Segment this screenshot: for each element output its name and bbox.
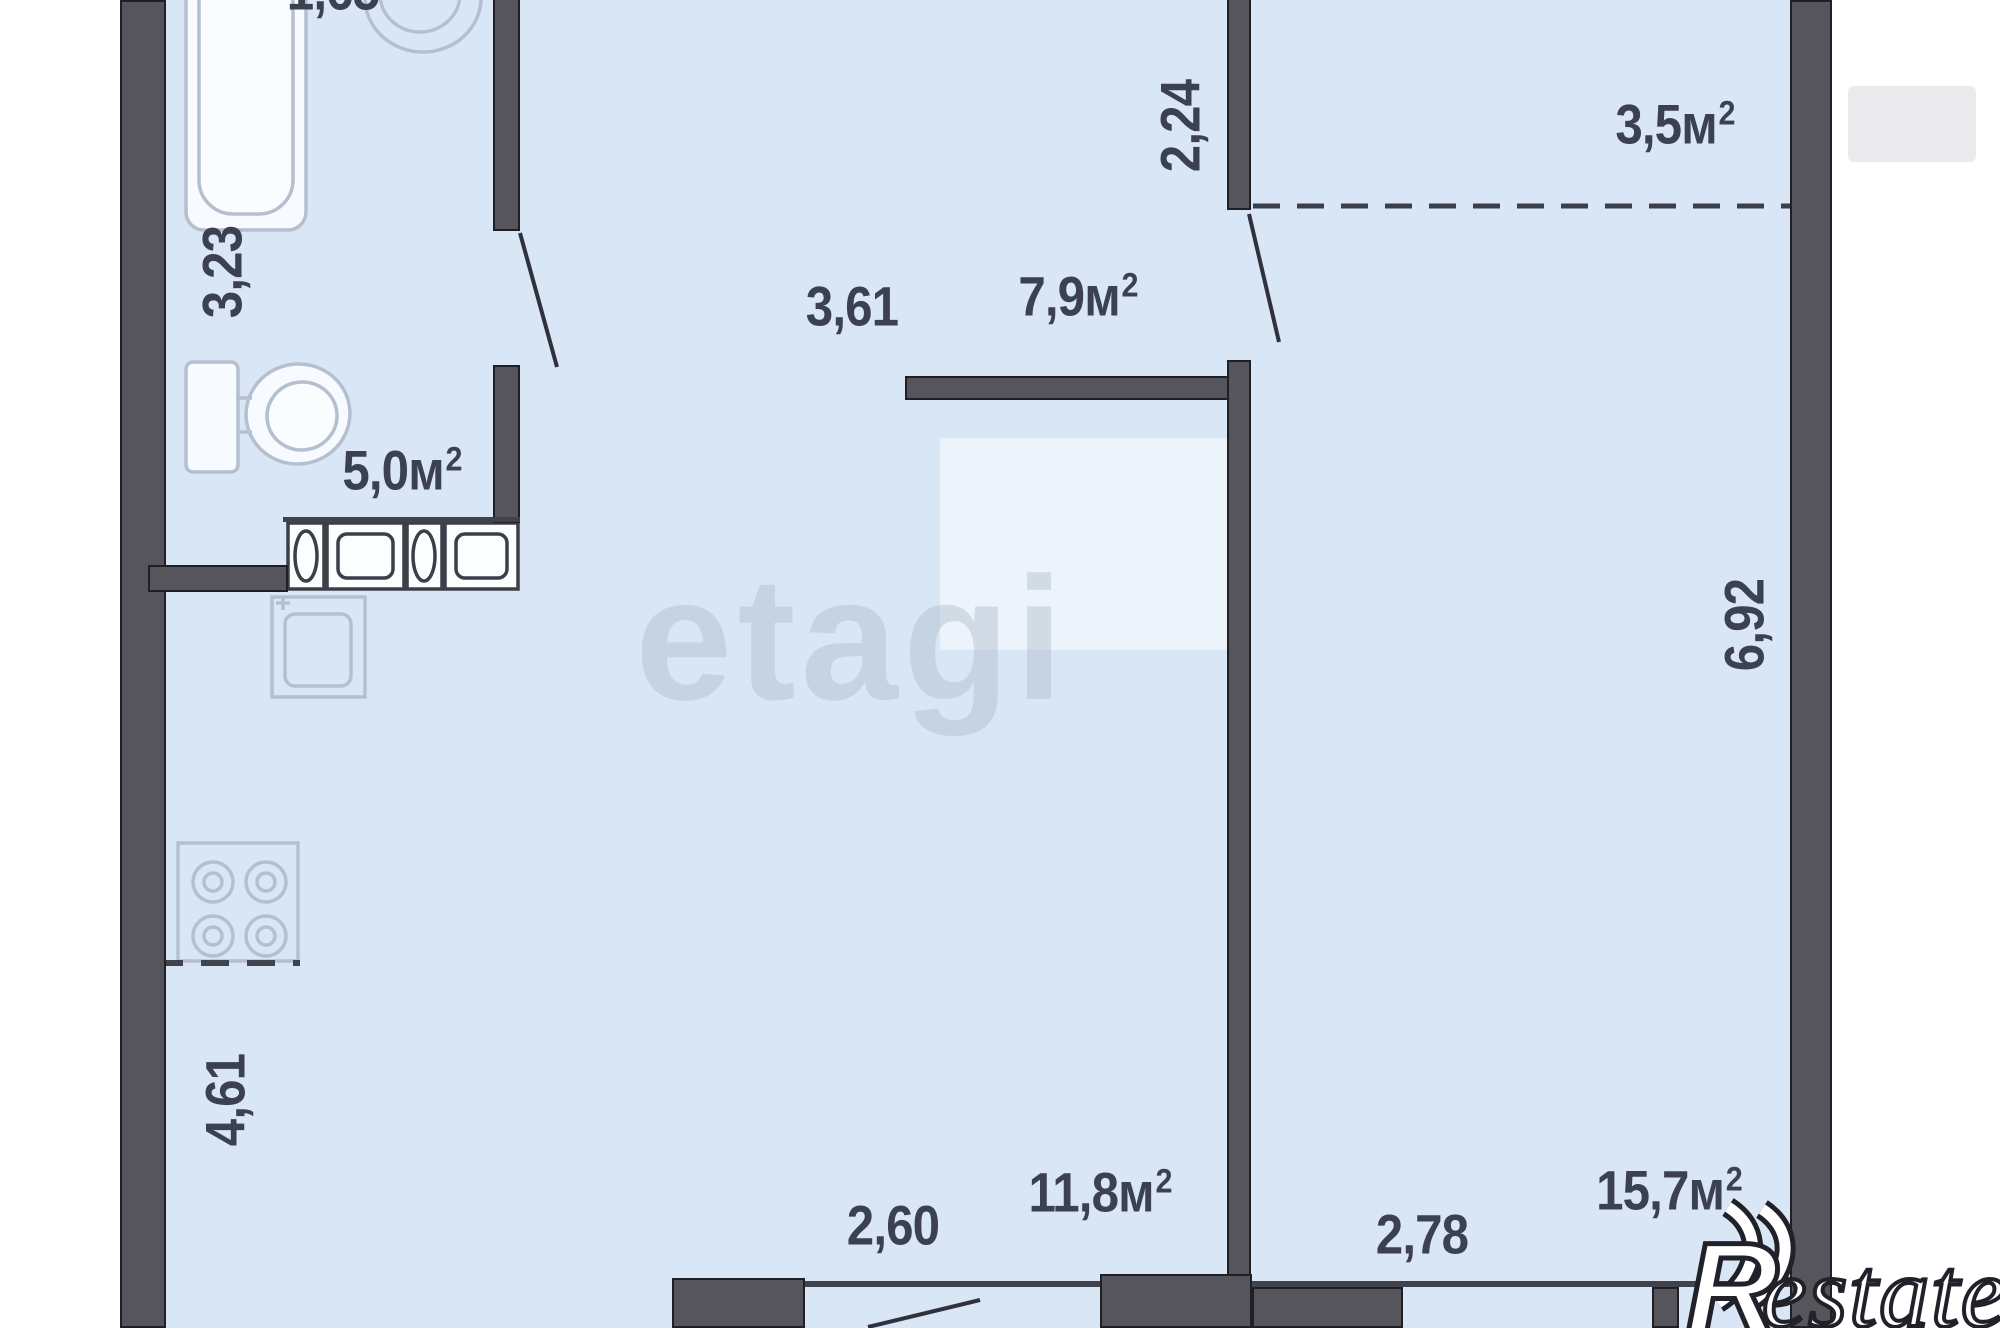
stove-icon [178,843,298,961]
dim-niche-depth: 2,24 [1148,80,1213,172]
watermark-restate-rest: estate [1762,1243,2000,1328]
wall-central-upper [1227,0,1251,210]
wall-bottom-band-2 [1252,1287,1403,1328]
area-niche: 3,5м2 [1615,92,1734,157]
wall-bath-east-lower [493,365,520,523]
dim-kitchen-width: 2,60 [847,1193,939,1258]
dim-bath-width-top: 1,65 [287,0,379,23]
washing-machines-icon [288,523,518,589]
wall-central-main [1227,360,1251,1290]
wall-bottom-band [1100,1274,1252,1328]
wall-bath-east-upper [493,0,520,231]
fixtures-layer [0,0,2000,1328]
kitchen-sink-icon [272,596,365,697]
balcony-door-swing [868,1300,980,1327]
dim-room-height: 6,92 [1712,579,1777,671]
dim-room-width: 2,78 [1376,1202,1468,1267]
area-kitchen-living: 11,8м2 [1028,1160,1171,1225]
dim-bath-height: 3,23 [190,226,255,318]
dim-kitchen-height: 4,61 [193,1054,258,1146]
wall-wetzone-stub [148,565,288,592]
room-door-swing [1249,214,1279,342]
dim-hall-width: 3,61 [806,274,898,339]
wall-washer-top-line [283,517,520,522]
wall-left-exterior [120,0,166,1328]
toilet-icon [186,357,356,472]
area-hallway: 7,9м2 [1018,264,1137,329]
area-bathroom: 5,0м2 [342,438,461,503]
bathroom-door-swing [520,233,557,367]
wall-hallway-south [905,376,1230,400]
bathtub-icon [186,0,306,230]
watermark-restate: R estate [1640,1195,2000,1328]
wall-right-exterior [1790,0,1832,1328]
washbasin-icon [365,0,481,52]
floor-plan-canvas: etagi [0,0,2000,1328]
wall-balcony-pier [672,1278,805,1328]
